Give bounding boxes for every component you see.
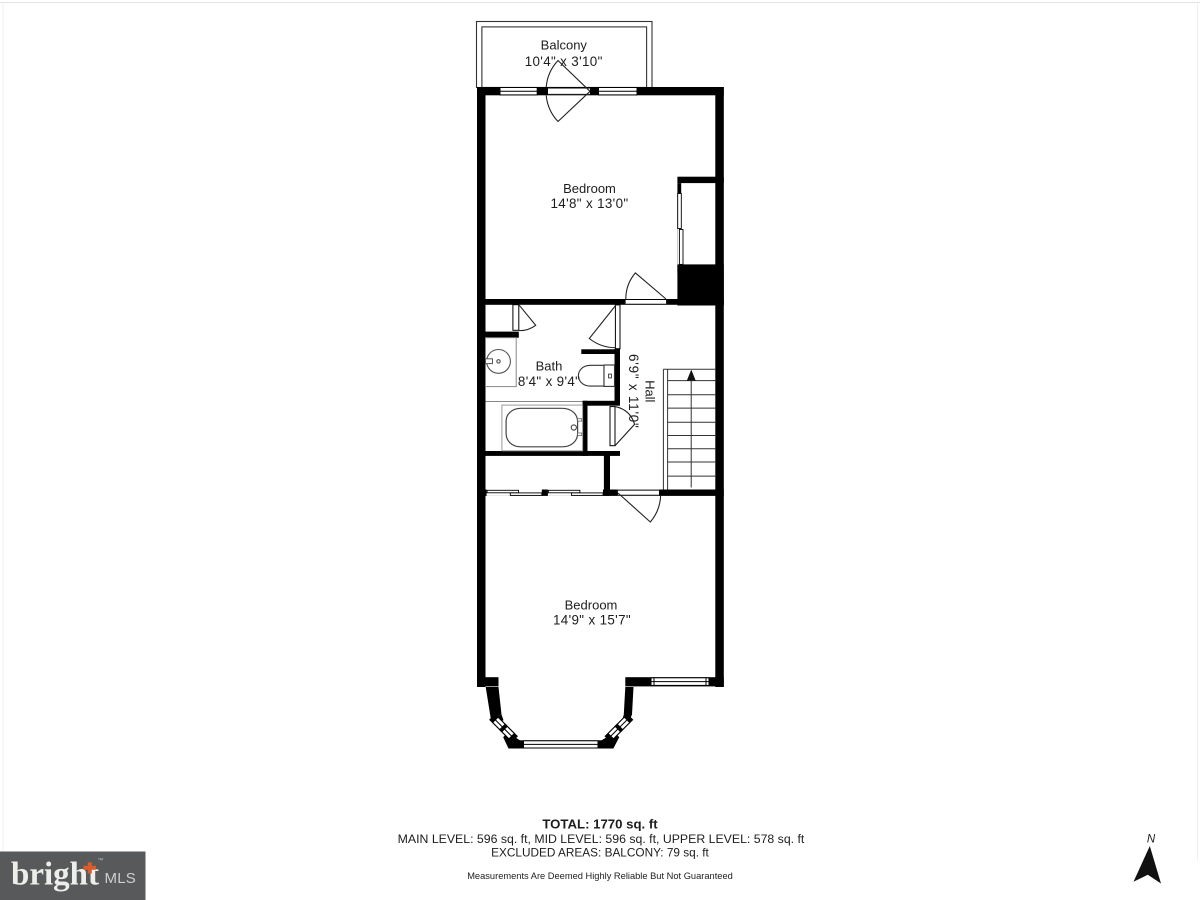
svg-text:Hall: Hall: [642, 380, 657, 402]
svg-text:Bath: Bath: [536, 358, 563, 373]
svg-text:14'8" x 13'0": 14'8" x 13'0": [551, 196, 629, 211]
svg-text:™: ™: [98, 857, 104, 864]
svg-text:MLS: MLS: [105, 870, 136, 887]
svg-text:Balcony: Balcony: [541, 38, 588, 53]
svg-text:bright: bright: [11, 857, 99, 893]
svg-text:N: N: [1147, 834, 1156, 846]
svg-text:Bedroom: Bedroom: [565, 598, 618, 613]
svg-text:TOTAL: 1770 sq. ft: TOTAL: 1770 sq. ft: [542, 817, 658, 832]
svg-text:Measurements Are Deemed Highly: Measurements Are Deemed Highly Reliable …: [467, 871, 733, 881]
svg-text:MAIN LEVEL: 596 sq. ft, MID LE: MAIN LEVEL: 596 sq. ft, MID LEVEL: 596 s…: [398, 832, 805, 846]
svg-text:10'4" x 3'10": 10'4" x 3'10": [525, 54, 603, 69]
svg-text:EXCLUDED AREAS: BALCONY: 79 sq: EXCLUDED AREAS: BALCONY: 79 sq. ft: [491, 846, 709, 860]
svg-text:Bedroom: Bedroom: [563, 181, 616, 196]
svg-text:6'9" x 11'0": 6'9" x 11'0": [626, 354, 641, 429]
svg-text:14'9" x 15'7": 14'9" x 15'7": [553, 613, 631, 628]
svg-text:8'4" x 9'4": 8'4" x 9'4": [518, 374, 580, 389]
